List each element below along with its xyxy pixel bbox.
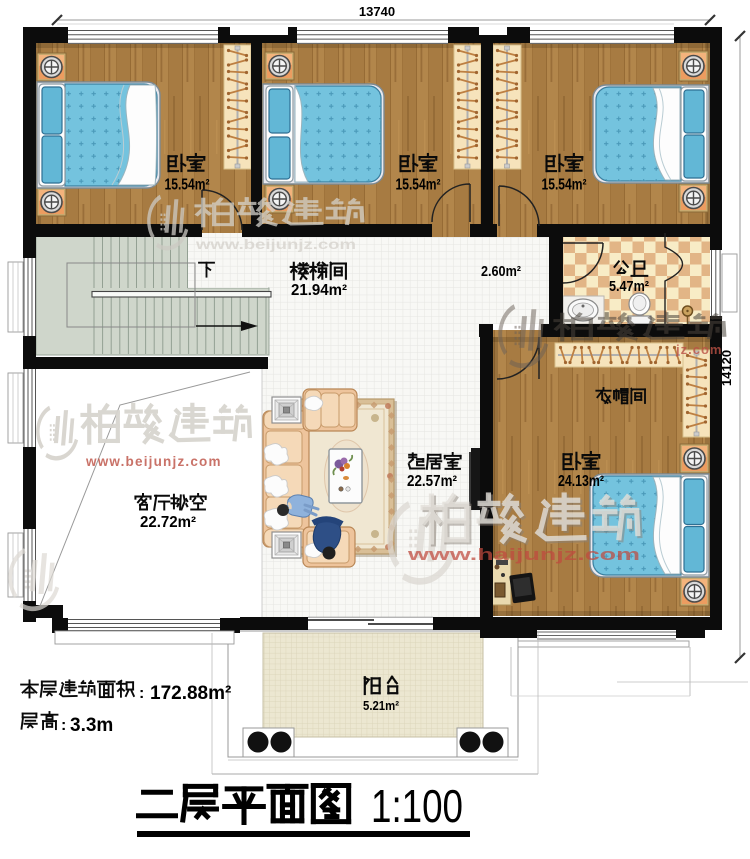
svg-text:3.3m: 3.3m: [70, 715, 113, 736]
svg-text:22.72m²: 22.72m²: [140, 514, 196, 531]
svg-text:24.13m²: 24.13m²: [558, 473, 604, 490]
svg-text:5.47m²: 5.47m²: [609, 279, 649, 295]
svg-text:jz.com: jz.com: [675, 342, 722, 357]
svg-text:1:100: 1:100: [371, 780, 463, 832]
svg-text:5.21m²: 5.21m²: [363, 698, 400, 713]
svg-text:www.haijunjz.com: www.haijunjz.com: [406, 546, 640, 564]
svg-text::: :: [139, 685, 144, 702]
svg-text:172.88m²: 172.88m²: [150, 683, 231, 704]
svg-text:www.beijunjz.com: www.beijunjz.com: [195, 237, 356, 252]
svg-text:15.54m²: 15.54m²: [165, 177, 210, 194]
svg-text:www.beijunjz.com: www.beijunjz.com: [85, 454, 222, 469]
svg-text:2.60m²: 2.60m²: [481, 264, 521, 280]
svg-text:14120: 14120: [719, 350, 734, 386]
svg-text:21.94m²: 21.94m²: [291, 282, 347, 299]
svg-text:15.54m²: 15.54m²: [542, 177, 587, 194]
svg-text:13740: 13740: [359, 4, 395, 19]
svg-text:15.54m²: 15.54m²: [396, 177, 441, 194]
svg-text:22.57m²: 22.57m²: [407, 473, 457, 490]
svg-text::: :: [61, 717, 66, 734]
